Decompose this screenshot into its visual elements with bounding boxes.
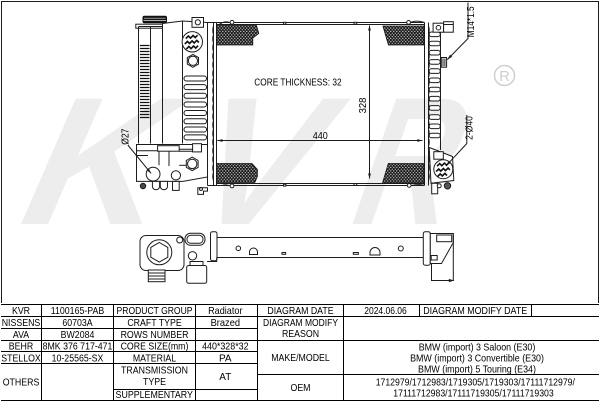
svg-text:440*328*32: 440*328*32 — [202, 341, 248, 353]
svg-text:BMW (import) 5 Touring (E34): BMW (import) 5 Touring (E34) — [418, 364, 536, 376]
svg-text:TYPE: TYPE — [143, 375, 166, 387]
svg-text:DIAGRAM MODIFY: DIAGRAM MODIFY — [263, 317, 338, 328]
svg-text:MAKE/MODEL: MAKE/MODEL — [271, 351, 330, 363]
svg-text:328: 328 — [358, 98, 369, 114]
svg-text:PRODUCT GROUP: PRODUCT GROUP — [117, 306, 193, 317]
svg-text:AVA: AVA — [13, 328, 30, 340]
svg-text:MATERIAL: MATERIAL — [133, 352, 176, 364]
svg-text:OEM: OEM — [290, 381, 310, 393]
svg-text:17111712983/17111719305/171117: 17111712983/17111719305/17111719303 — [393, 388, 553, 399]
svg-text:1712979/1712983/1719305/171930: 1712979/1712983/1719305/1719303/17111712… — [376, 377, 576, 388]
svg-text:10-25565-SX: 10-25565-SX — [52, 352, 104, 364]
svg-text:1100165-PAB: 1100165-PAB — [51, 305, 104, 317]
svg-text:SUPPLEMENTARY: SUPPLEMENTARY — [116, 390, 194, 402]
svg-text:CORE SIZE(mm): CORE SIZE(mm) — [121, 340, 189, 352]
svg-text:NISSENS: NISSENS — [2, 317, 41, 329]
svg-text:DIAGRAM MODIFY DATE: DIAGRAM MODIFY DATE — [423, 306, 527, 318]
svg-text:440: 440 — [313, 131, 328, 143]
svg-text:BEHR: BEHR — [9, 340, 34, 352]
svg-text:BW2084: BW2084 — [61, 328, 95, 340]
svg-text:KVR: KVR — [12, 305, 30, 317]
svg-text:ROWS NUMBER: ROWS NUMBER — [121, 328, 189, 340]
svg-text:CORE THICKNESS: 32: CORE THICKNESS: 32 — [254, 77, 341, 88]
svg-text:DIAGRAM DATE: DIAGRAM DATE — [267, 305, 333, 317]
svg-text:BMW (import) 3 Convertible (E3: BMW (import) 3 Convertible (E30) — [410, 353, 544, 365]
svg-text:2-Ø40: 2-Ø40 — [464, 116, 475, 140]
svg-text:OTHERS: OTHERS — [3, 376, 40, 388]
svg-text:60703A: 60703A — [62, 317, 93, 329]
svg-text:CRAFT TYPE: CRAFT TYPE — [127, 317, 181, 329]
svg-text:TRANSMISSION: TRANSMISSION — [121, 364, 188, 376]
svg-text:Radiator: Radiator — [208, 306, 243, 318]
svg-text:BMW (import) 3 Saloon (E30): BMW (import) 3 Saloon (E30) — [419, 342, 536, 354]
svg-text:8MK 376 717-471: 8MK 376 717-471 — [43, 340, 113, 352]
svg-text:Brazed: Brazed — [211, 318, 240, 329]
svg-text:2024.06.06: 2024.06.06 — [364, 306, 406, 317]
svg-text:REASON: REASON — [282, 327, 319, 339]
svg-text:AT: AT — [219, 372, 231, 383]
svg-text:STELLOX: STELLOX — [1, 352, 41, 364]
svg-text:M14*1.5: M14*1.5 — [465, 6, 476, 37]
svg-text:Ø27: Ø27 — [120, 129, 131, 145]
svg-text:R: R — [499, 68, 510, 85]
svg-text:PA: PA — [219, 354, 232, 365]
